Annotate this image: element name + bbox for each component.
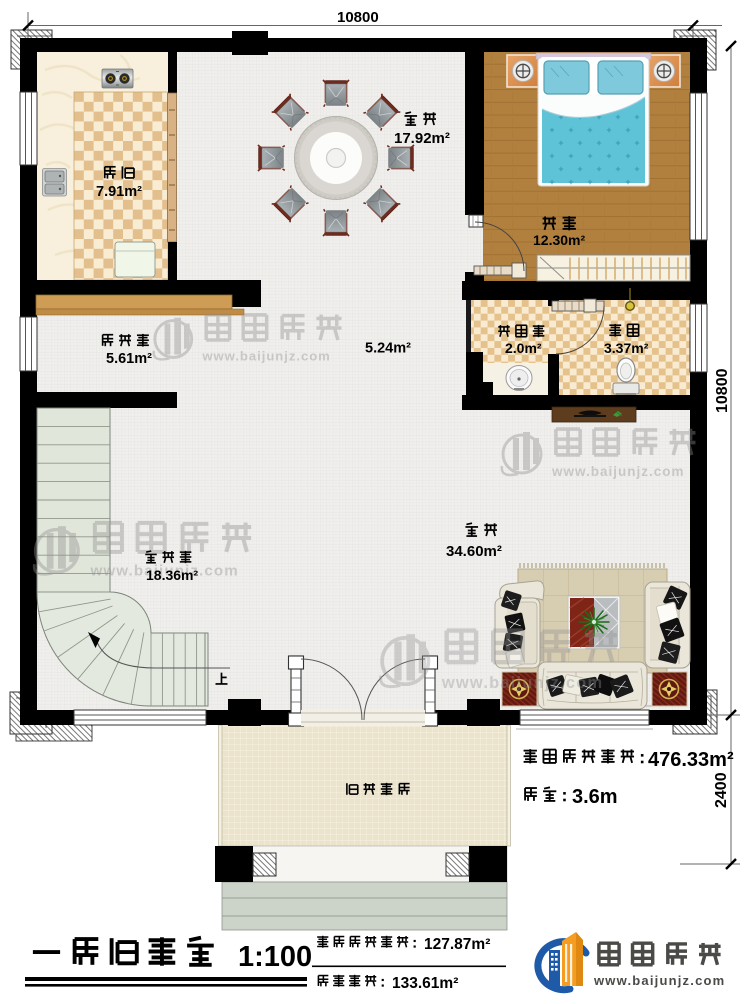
- svg-text:12.30m²: 12.30m²: [533, 232, 585, 248]
- svg-text:www.baijunjz.com: www.baijunjz.com: [441, 674, 604, 692]
- svg-text:133.61m²: 133.61m²: [392, 975, 458, 992]
- svg-text:www.baijunjz.com: www.baijunjz.com: [551, 464, 685, 479]
- svg-text:476.33m²: 476.33m²: [648, 749, 734, 771]
- svg-text:3.37m²: 3.37m²: [604, 340, 649, 356]
- svg-text:www.baijunjz.com: www.baijunjz.com: [201, 348, 330, 363]
- svg-text:1:100: 1:100: [238, 941, 312, 973]
- svg-text:2400: 2400: [713, 772, 730, 808]
- svg-text:18.36m²: 18.36m²: [146, 567, 198, 583]
- svg-text:10800: 10800: [337, 9, 379, 26]
- svg-text:127.87m²: 127.87m²: [424, 936, 490, 953]
- svg-text:7.91m²: 7.91m²: [96, 184, 142, 200]
- svg-text:10800: 10800: [714, 368, 731, 413]
- svg-text:2.0m²: 2.0m²: [505, 340, 542, 356]
- svg-text:www.baijunjz.com: www.baijunjz.com: [593, 973, 725, 988]
- svg-text:5.61m²: 5.61m²: [106, 351, 152, 367]
- svg-text:3.6m: 3.6m: [572, 786, 618, 808]
- svg-text:5.24m²: 5.24m²: [365, 341, 411, 357]
- svg-text:17.92m²: 17.92m²: [394, 130, 450, 147]
- svg-text:34.60m²: 34.60m²: [446, 543, 502, 560]
